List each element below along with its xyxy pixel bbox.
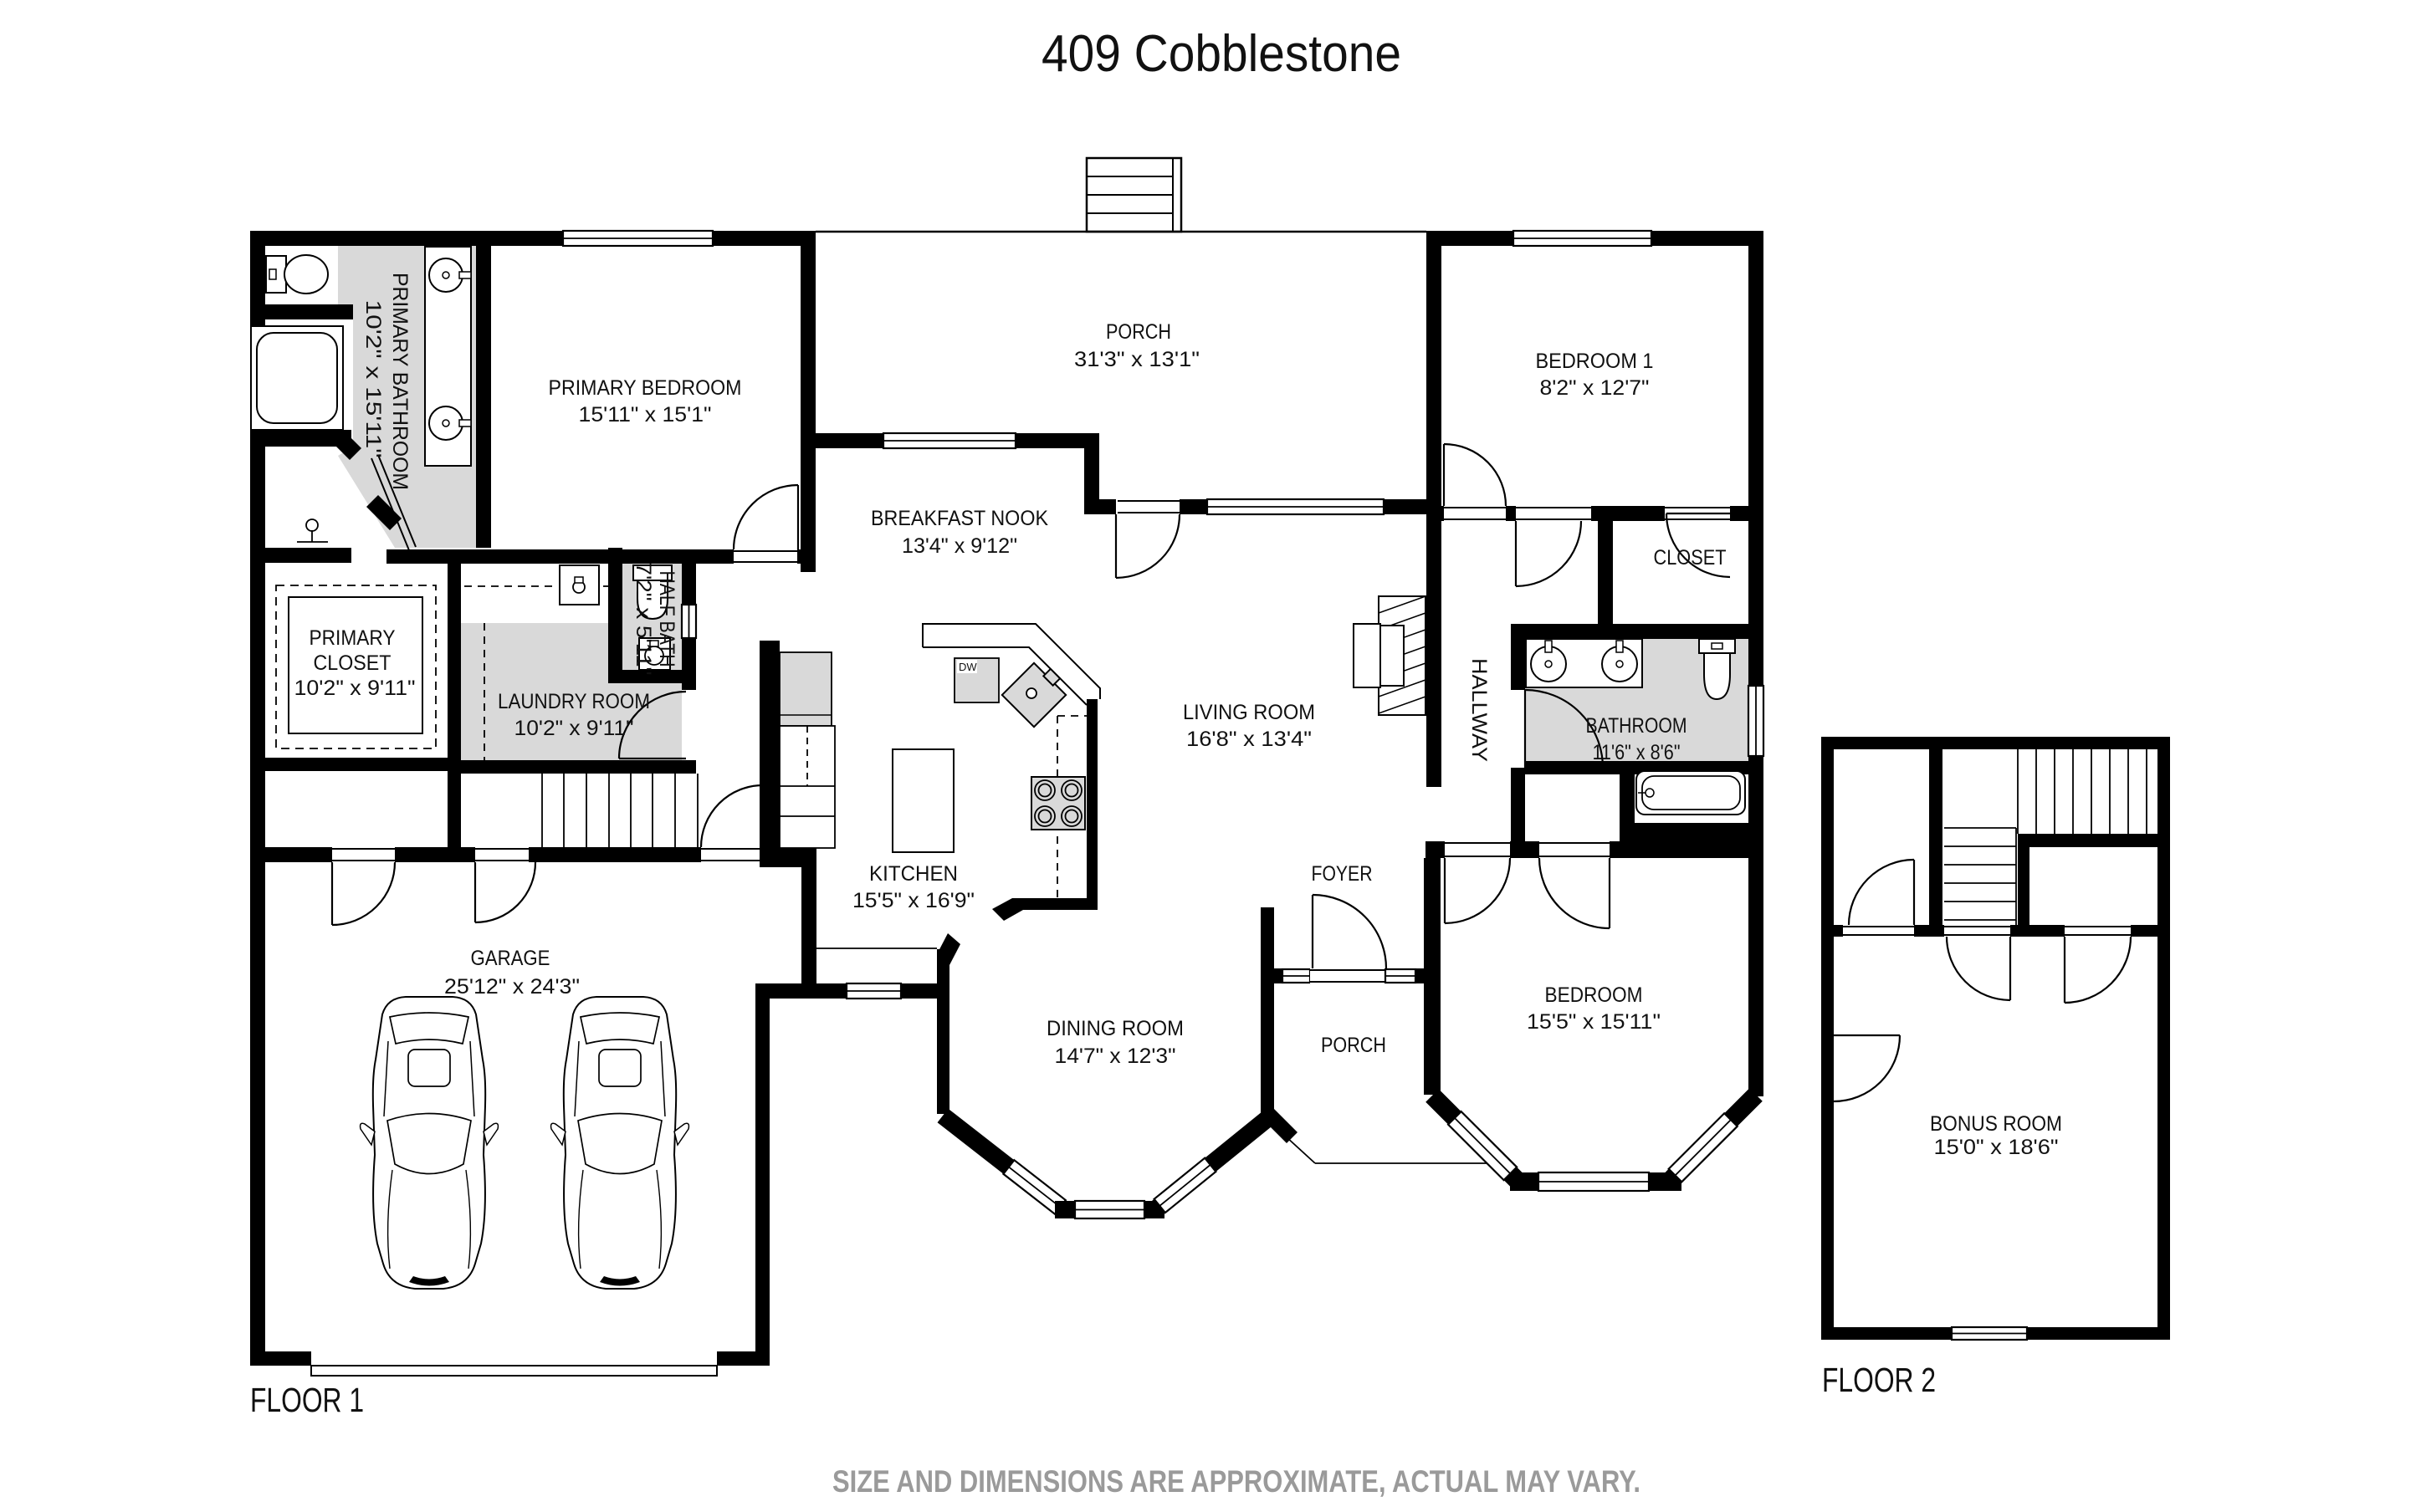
svg-text:DINING ROOM: DINING ROOM bbox=[1047, 1017, 1184, 1040]
svg-text:PRIMARY: PRIMARY bbox=[310, 626, 396, 650]
svg-text:15'0" x 18'6": 15'0" x 18'6" bbox=[1934, 1136, 2059, 1159]
svg-text:LAUNDRY ROOM: LAUNDRY ROOM bbox=[498, 690, 650, 713]
svg-text:25'12" x 24'3": 25'12" x 24'3" bbox=[444, 975, 580, 999]
svg-text:10'2" x 15'11": 10'2" x 15'11" bbox=[361, 300, 385, 458]
svg-text:CLOSET: CLOSET bbox=[1654, 546, 1727, 570]
svg-text:KITCHEN: KITCHEN bbox=[869, 862, 958, 886]
svg-text:16'8" x 13'4": 16'8" x 13'4" bbox=[1186, 728, 1312, 751]
svg-text:11'6" x 8'6": 11'6" x 8'6" bbox=[1593, 741, 1681, 764]
svg-text:FOYER: FOYER bbox=[1312, 862, 1373, 886]
svg-text:BEDROOM 1: BEDROOM 1 bbox=[1536, 350, 1654, 373]
svg-text:CLOSET: CLOSET bbox=[314, 651, 392, 675]
svg-text:14'7" x 12'3": 14'7" x 12'3" bbox=[1055, 1045, 1176, 1068]
svg-text:BREAKFAST NOOK: BREAKFAST NOOK bbox=[871, 507, 1048, 530]
svg-text:LIVING ROOM: LIVING ROOM bbox=[1183, 701, 1315, 724]
svg-text:HALF BATH: HALF BATH bbox=[655, 571, 678, 667]
svg-text:PORCH: PORCH bbox=[1321, 1034, 1386, 1057]
svg-text:SIZE AND DIMENSIONS ARE APPROX: SIZE AND DIMENSIONS ARE APPROXIMATE, ACT… bbox=[832, 1464, 1640, 1499]
svg-text:BEDROOM: BEDROOM bbox=[1545, 983, 1643, 1007]
svg-text:PRIMARY BEDROOM: PRIMARY BEDROOM bbox=[549, 376, 742, 400]
svg-text:FLOOR 1: FLOOR 1 bbox=[250, 1381, 364, 1419]
svg-text:PRIMARY BATHROOM: PRIMARY BATHROOM bbox=[388, 273, 412, 490]
svg-text:FLOOR 2: FLOOR 2 bbox=[1822, 1361, 1936, 1399]
svg-text:10'2" x 9'11": 10'2" x 9'11" bbox=[294, 677, 416, 700]
svg-text:PORCH: PORCH bbox=[1106, 320, 1171, 344]
svg-text:15'5" x 16'9": 15'5" x 16'9" bbox=[852, 889, 975, 912]
svg-text:HALLWAY: HALLWAY bbox=[1467, 658, 1491, 762]
svg-text:15'11" x 15'1": 15'11" x 15'1" bbox=[579, 403, 712, 427]
svg-text:BATHROOM: BATHROOM bbox=[1586, 714, 1687, 738]
svg-text:15'5" x 15'11": 15'5" x 15'11" bbox=[1527, 1010, 1661, 1034]
svg-text:13'4" x 9'12": 13'4" x 9'12" bbox=[902, 534, 1017, 558]
svg-text:GARAGE: GARAGE bbox=[471, 947, 550, 970]
svg-text:409 Cobblestone: 409 Cobblestone bbox=[1042, 25, 1401, 83]
svg-text:7'2" x 5'11": 7'2" x 5'11" bbox=[632, 563, 655, 676]
svg-text:BONUS ROOM: BONUS ROOM bbox=[1930, 1112, 2062, 1136]
svg-text:DW: DW bbox=[959, 661, 977, 673]
svg-text:31'3" x 13'1": 31'3" x 13'1" bbox=[1074, 348, 1200, 371]
svg-text:8'2" x 12'7": 8'2" x 12'7" bbox=[1540, 376, 1650, 400]
svg-text:10'2" x 9'11": 10'2" x 9'11" bbox=[514, 717, 634, 740]
